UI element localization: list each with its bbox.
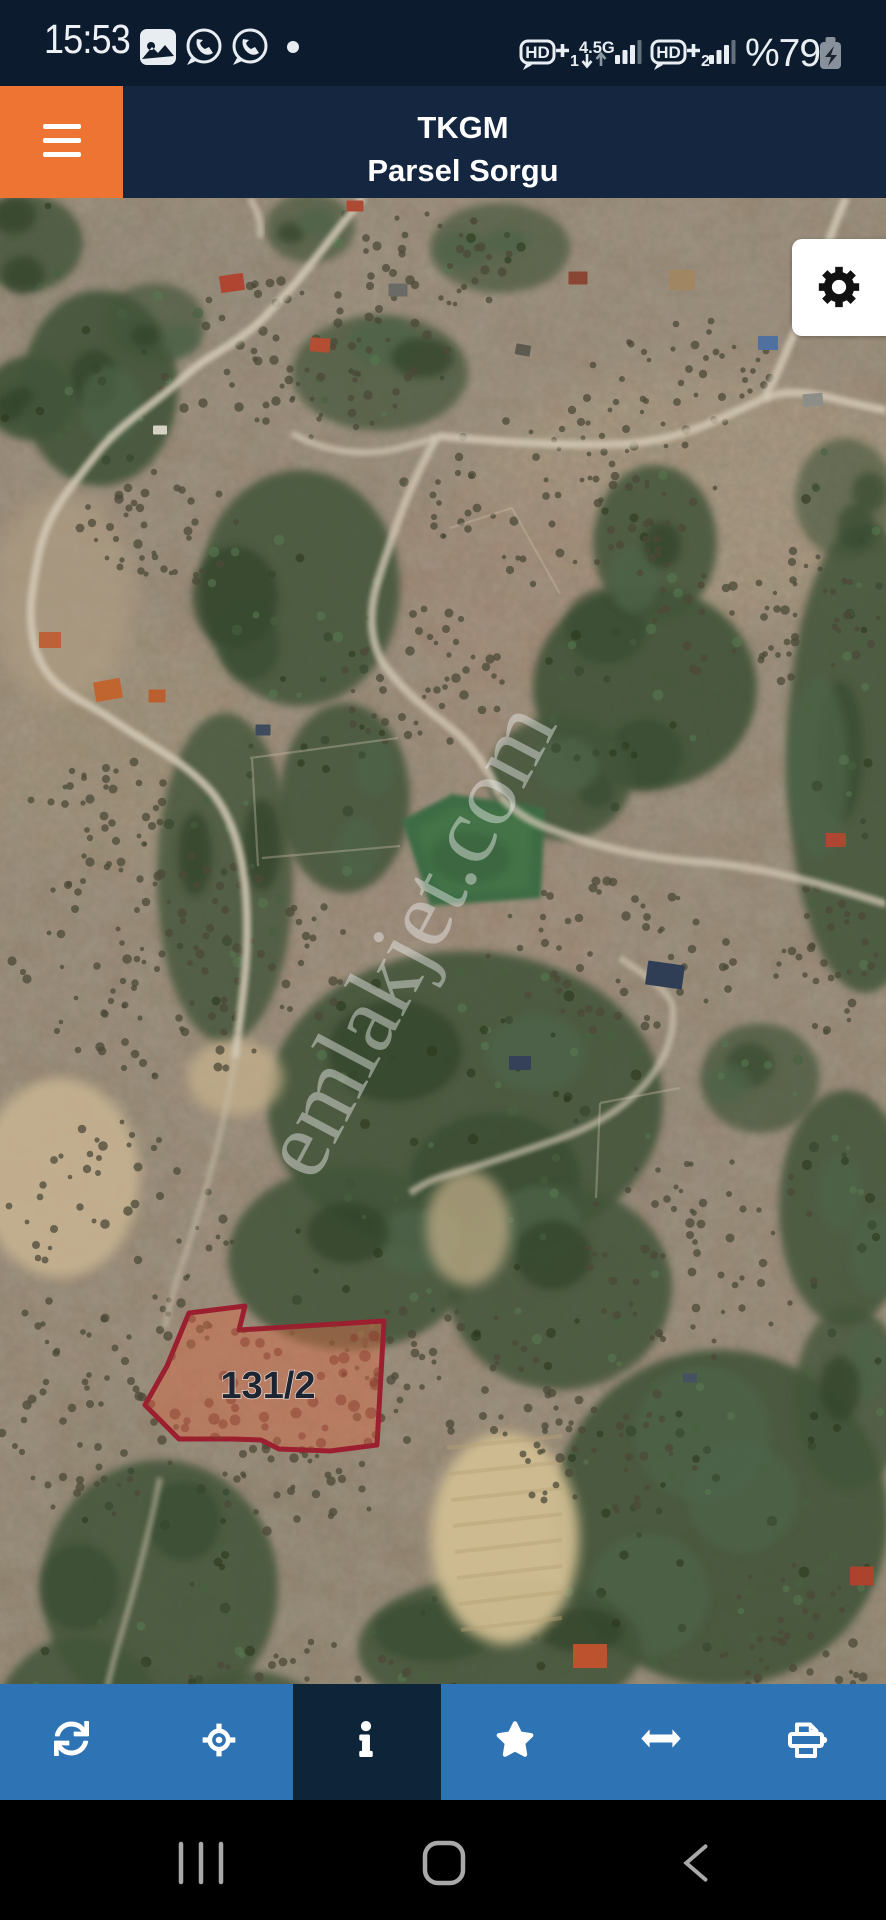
- svg-text:%79: %79: [745, 32, 820, 75]
- svg-text:HD: HD: [525, 43, 550, 62]
- svg-text:1: 1: [570, 53, 579, 70]
- svg-text:2: 2: [701, 53, 710, 70]
- svg-text:4.5G: 4.5G: [579, 39, 615, 57]
- svg-text:131/2: 131/2: [220, 1365, 315, 1407]
- svg-text:HD: HD: [656, 43, 681, 62]
